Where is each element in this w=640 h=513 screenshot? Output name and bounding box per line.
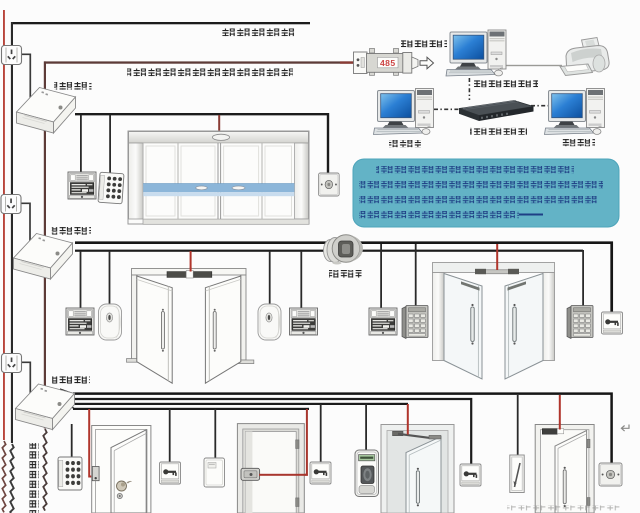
svg-text:485: 485 [380,58,396,68]
